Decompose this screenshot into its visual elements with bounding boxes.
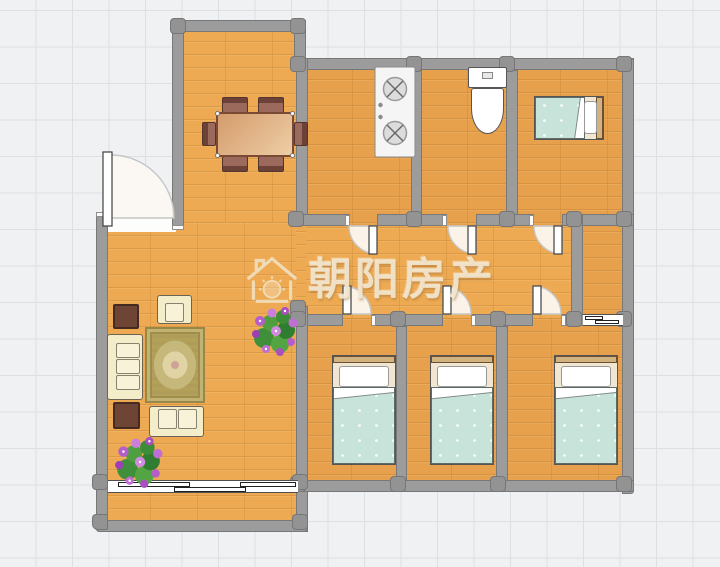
door-overlay bbox=[0, 0, 720, 567]
bathroom-door-leaf bbox=[468, 226, 476, 254]
bedroom1-door-leaf bbox=[343, 286, 351, 314]
top-bedroom-door-leaf bbox=[554, 226, 562, 254]
kitchen-door-leaf bbox=[369, 226, 377, 254]
entry-door-arc bbox=[111, 155, 174, 218]
entry-door-leaf bbox=[103, 152, 112, 226]
bedroom3-door-leaf bbox=[533, 286, 541, 314]
potted-plant bbox=[113, 436, 163, 488]
potted-plant bbox=[250, 306, 298, 356]
floor-plan: 朝阳房产 bbox=[0, 0, 720, 567]
bedroom2-door-leaf bbox=[443, 286, 451, 314]
